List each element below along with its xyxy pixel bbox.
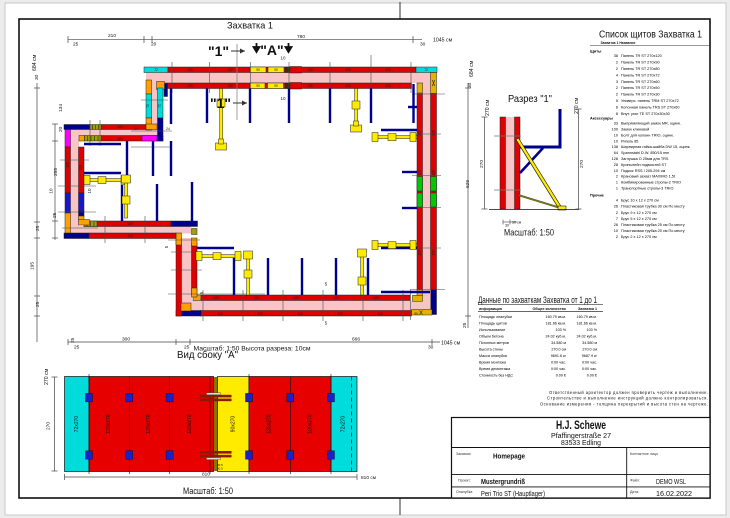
svg-text:Данные по захваткам Захватка: Данные по захваткам Захватка от 1 до 1 [478, 295, 597, 305]
svg-text:4: 4 [616, 199, 618, 203]
svg-text:20: 20 [151, 42, 157, 48]
svg-text:120x270: 120x270 [106, 414, 112, 433]
svg-text:"A": "A" [260, 42, 283, 58]
svg-text:120: 120 [418, 170, 422, 176]
svg-text:Панель TR ST 270x50: Панель TR ST 270x50 [621, 86, 660, 90]
svg-text:Файл:: Файл: [630, 479, 640, 483]
svg-text:20: 20 [58, 126, 64, 132]
svg-text:134: 134 [58, 104, 64, 112]
svg-text:120: 120 [307, 68, 313, 72]
svg-text:Колонная панель TRS ST 270x60: Колонная панель TRS ST 270x60 [621, 105, 679, 109]
svg-text:270.0 см: 270.0 см [582, 347, 597, 351]
svg-text:300: 300 [122, 337, 130, 343]
svg-text:30: 30 [467, 82, 473, 88]
svg-text:информация: информация [479, 307, 502, 311]
svg-text:Заглушка O 25мм для TRS: Заглушка O 25мм для TRS [621, 157, 669, 161]
svg-text:120: 120 [432, 170, 436, 176]
svg-text:Панель TR ST 270x90: Панель TR ST 270x90 [621, 61, 660, 65]
svg-text:Время монтажа: Время монтажа [479, 360, 507, 364]
svg-text:1: 1 [616, 181, 618, 185]
svg-text:Кронштейн подмостей ST: Кронштейн подмостей ST [621, 163, 667, 167]
svg-text:Пластиковая трубка 20 см По ме: Пластиковая трубка 20 см По месту [621, 229, 685, 233]
svg-text:Брус 9 x 12 x 270 см: Брус 9 x 12 x 270 см [621, 211, 657, 215]
svg-text:120: 120 [187, 84, 193, 88]
svg-text:684 см: 684 см [32, 54, 38, 71]
svg-text:810 см: 810 см [361, 475, 376, 481]
svg-text:8: 8 [616, 112, 618, 116]
svg-text:120: 120 [127, 222, 133, 226]
svg-text:34.580 м: 34.580 м [551, 341, 566, 345]
svg-text:160.79 кв.м.: 160.79 кв.м. [546, 315, 566, 319]
svg-text:120: 120 [227, 84, 233, 88]
svg-text:120x270: 120x270 [146, 414, 152, 433]
svg-text:120: 120 [345, 84, 351, 88]
svg-text:72x270: 72x270 [74, 416, 80, 433]
svg-text:16.02.2022: 16.02.2022 [656, 491, 692, 498]
svg-text:160.79 кв.м.: 160.79 кв.м. [577, 315, 597, 319]
svg-text:10: 10 [614, 169, 618, 173]
svg-text:Опалубка: Опалубка [456, 490, 472, 494]
svg-text:Высота стены: Высота стены [479, 347, 503, 351]
svg-text:Подкос RSS I 205-294 см: Подкос RSS I 205-294 см [621, 169, 666, 173]
svg-text:666: 666 [352, 337, 360, 343]
svg-text:10: 10 [614, 139, 618, 143]
svg-text:Комбинированные стропы-2 TRIO: Комбинированные стропы-2 TRIO [621, 181, 681, 185]
svg-text:0.00 €: 0.00 € [587, 373, 597, 377]
svg-text:Брус 5 x 12 x 270 см: Брус 5 x 12 x 270 см [621, 217, 657, 221]
svg-text:2: 2 [616, 93, 618, 97]
svg-text:120: 120 [117, 125, 123, 129]
svg-text:120x270: 120x270 [187, 414, 193, 433]
svg-text:270: 270 [479, 160, 485, 168]
svg-text:120x270: 120x270 [267, 414, 273, 433]
svg-text:Проект:: Проект: [458, 479, 471, 483]
svg-text:25: 25 [74, 345, 80, 351]
svg-text:120: 120 [418, 130, 422, 136]
svg-text:72: 72 [154, 68, 158, 72]
svg-text:0:00 час.: 0:00 час. [582, 360, 597, 364]
svg-text:10: 10 [49, 188, 54, 194]
svg-text:Крановый захват MAXIMO 1,5t: Крановый захват MAXIMO 1,5t [621, 175, 676, 179]
svg-text:Шарнирная гайка-шайба DW 15, о: Шарнирная гайка-шайба DW 15, оцинк. [621, 145, 690, 149]
svg-text:Строительство и выполнение инс: Строительство и выполнение инструкций до… [547, 396, 708, 401]
svg-text:Щиты: Щиты [590, 49, 601, 53]
svg-text:90: 90 [256, 68, 260, 72]
svg-text:Время демонтажа: Время демонтажа [479, 367, 511, 371]
svg-text:90: 90 [274, 68, 278, 72]
svg-text:3: 3 [616, 80, 618, 84]
svg-text:24.02 куб.м.: 24.02 куб.м. [546, 334, 567, 338]
svg-text:Внут. угол TE ST 270x30x30: Внут. угол TE ST 270x30x30 [621, 112, 670, 116]
svg-text:Выпрямляющий замок MR, оцинк.: Выпрямляющий замок MR, оцинк. [621, 122, 681, 126]
svg-text:120: 120 [385, 84, 391, 88]
svg-text:Дата:: Дата: [630, 490, 639, 494]
svg-text:255: 255 [53, 168, 59, 176]
svg-text:DEMO WSL: DEMO WSL [656, 479, 686, 486]
svg-text:120: 120 [337, 312, 343, 316]
svg-text:Универс. панель TRM ST 270x72: Универс. панель TRM ST 270x72 [621, 99, 679, 103]
svg-text:Контактное лицо: Контактное лицо [630, 452, 658, 456]
svg-text:64: 64 [614, 151, 618, 155]
svg-text:Pfaffingerstraße 27: Pfaffingerstraße 27 [551, 433, 611, 440]
svg-text:120: 120 [418, 250, 422, 256]
svg-text:Панель TR ST 270x80: Панель TR ST 270x80 [621, 67, 660, 71]
svg-text:Захватка 1: Захватка 1 [227, 21, 273, 31]
svg-text:120: 120 [127, 234, 133, 238]
svg-text:30: 30 [420, 42, 426, 48]
svg-text:Peri Trio ST (Hauptlager): Peri Trio ST (Hauptlager) [481, 491, 545, 498]
svg-text:1045 см: 1045 см [441, 341, 461, 347]
svg-text:684 см: 684 см [469, 60, 475, 77]
svg-text:Панель TR ST 270x60: Панель TR ST 270x60 [621, 80, 660, 84]
svg-text:"1": "1" [208, 43, 229, 59]
svg-text:Панель TR ST 270x72: Панель TR ST 270x72 [621, 73, 660, 77]
svg-text:90: 90 [274, 84, 278, 88]
svg-text:83533 Edling: 83533 Edling [561, 440, 601, 447]
svg-text:Homepage: Homepage [493, 454, 525, 461]
svg-text:120: 120 [432, 250, 436, 256]
svg-text:Использование: Использование [479, 328, 505, 332]
svg-text:9691.6 кг: 9691.6 кг [551, 354, 567, 358]
svg-text:90x270: 90x270 [231, 416, 237, 433]
svg-text:Общее количество: Общее количество [532, 307, 566, 311]
svg-text:7: 7 [616, 217, 618, 221]
svg-text:2: 2 [616, 61, 618, 65]
svg-text:270.0 см: 270.0 см [551, 347, 566, 351]
svg-text:Основание измерения - толщина: Основание измерения - толщина перекрытий… [540, 401, 708, 406]
svg-text:Ригель 85: Ригель 85 [621, 139, 638, 143]
svg-text:33: 33 [614, 122, 618, 126]
svg-text:210: 210 [108, 33, 116, 39]
svg-text:120: 120 [117, 137, 123, 141]
svg-text:Брус 2 x 12 x 270 см: Брус 2 x 12 x 270 см [621, 235, 657, 239]
svg-text:25: 25 [462, 322, 468, 328]
svg-text:120: 120 [377, 312, 383, 316]
svg-text:26: 26 [614, 223, 618, 227]
svg-text:Погонных метров: Погонных метров [479, 341, 509, 345]
svg-text:270 см: 270 см [485, 99, 491, 116]
svg-text:120: 120 [432, 130, 436, 136]
svg-text:Разрез "1": Разрез "1" [508, 94, 552, 105]
svg-text:25: 25 [35, 225, 41, 231]
svg-text:30 см: 30 см [512, 221, 522, 225]
svg-text:26: 26 [614, 205, 618, 209]
svg-text:72: 72 [146, 104, 150, 108]
svg-text:2: 2 [616, 86, 618, 90]
svg-text:120: 120 [385, 68, 391, 72]
svg-text:120: 120 [293, 296, 299, 300]
svg-text:2: 2 [616, 211, 618, 215]
svg-text:810: 810 [202, 472, 210, 478]
svg-text:34.580 м: 34.580 м [582, 341, 597, 345]
svg-text:Масса опалубки: Масса опалубки [479, 354, 507, 358]
svg-text:100: 100 [612, 128, 618, 132]
svg-text:Захватка 1 Название: Захватка 1 Название [601, 41, 636, 45]
svg-text:270: 270 [579, 160, 585, 168]
svg-text:120: 120 [307, 84, 313, 88]
svg-text:0:00 час.: 0:00 час. [551, 367, 566, 371]
svg-text:Площадь щитов: Площадь щитов [479, 321, 507, 325]
svg-text:120: 120 [373, 296, 379, 300]
svg-text:6: 6 [616, 105, 618, 109]
svg-text:0:00 час.: 0:00 час. [582, 367, 597, 371]
svg-text:120x270: 120x270 [308, 414, 314, 433]
svg-text:120: 120 [297, 312, 303, 316]
svg-text:120: 120 [213, 296, 219, 300]
svg-text:Прочие: Прочие [590, 194, 604, 198]
svg-text:181.66 кв.м.: 181.66 кв.м. [546, 321, 566, 325]
svg-text:Масштаб: 1:50: Масштаб: 1:50 [504, 228, 554, 239]
svg-text:90: 90 [256, 84, 260, 88]
svg-text:30: 30 [428, 345, 434, 351]
svg-text:120: 120 [257, 312, 263, 316]
svg-text:30: 30 [34, 74, 40, 80]
svg-text:10: 10 [280, 96, 286, 101]
svg-text:Пластиковая трубка 25 см По ме: Пластиковая трубка 25 см По месту [621, 223, 685, 227]
svg-text:1045 см: 1045 см [433, 38, 453, 44]
svg-text:72: 72 [424, 68, 428, 72]
svg-text:90: 90 [414, 312, 418, 316]
svg-text:H.J. Schewe: H.J. Schewe [556, 420, 606, 432]
svg-text:103 %: 103 % [556, 328, 567, 332]
svg-text:72: 72 [158, 104, 162, 108]
svg-text:Пластиковая трубка 30 см По ме: Пластиковая трубка 30 см По месту [621, 205, 685, 209]
svg-text:138: 138 [612, 145, 618, 149]
svg-text:Стоимость без НДС: Стоимость без НДС [479, 373, 513, 377]
svg-text:Площадь опалубки: Площадь опалубки [479, 315, 512, 319]
svg-text:24: 24 [166, 127, 170, 131]
svg-text:2: 2 [616, 67, 618, 71]
svg-text:Панель TR ST 270x30: Панель TR ST 270x30 [621, 93, 660, 97]
svg-text:Болт для колонн TRIO, оцинк.: Болт для колонн TRIO, оцинк. [621, 133, 674, 137]
svg-text:120: 120 [79, 165, 83, 171]
svg-text:10: 10 [614, 133, 618, 137]
svg-text:24: 24 [134, 127, 138, 131]
svg-text:Панель TR ST 270x120: Панель TR ST 270x120 [621, 54, 662, 58]
svg-text:"1": "1" [210, 95, 231, 111]
svg-text:Mustergrundriß: Mustergrundriß [481, 479, 526, 486]
svg-text:Захватка 1: Захватка 1 [578, 307, 597, 311]
svg-text:10: 10 [87, 188, 92, 194]
svg-text:Список щитов Захватка 1: Список щитов Захватка 1 [599, 30, 702, 41]
svg-text:120: 120 [66, 162, 70, 168]
svg-text:Транспортные стропы-3 TRIO: Транспортные стропы-3 TRIO [621, 187, 673, 191]
svg-text:Масштаб: 1:50: Масштаб: 1:50 [183, 486, 233, 497]
svg-text:120: 120 [345, 68, 351, 72]
svg-text:38: 38 [614, 54, 618, 58]
svg-text:4: 4 [616, 73, 618, 77]
svg-text:25: 25 [73, 42, 79, 48]
svg-text:10: 10 [614, 229, 618, 233]
svg-text:9687.9 кг: 9687.9 кг [582, 354, 598, 358]
svg-text:Заказчик: Заказчик [456, 452, 471, 456]
svg-text:72x270: 72x270 [341, 416, 347, 433]
svg-text:120: 120 [227, 68, 233, 72]
svg-text:0.00 €: 0.00 € [556, 373, 566, 377]
svg-text:780: 780 [297, 34, 305, 40]
svg-text:120: 120 [253, 296, 259, 300]
svg-text:Брус 10 x 12 x 270 см: Брус 10 x 12 x 270 см [621, 199, 659, 203]
svg-text:Вид сбоку "А": Вид сбоку "А" [177, 349, 238, 361]
svg-text:2: 2 [616, 235, 618, 239]
svg-text:30.5: 30.5 [217, 467, 223, 471]
svg-text:25: 25 [35, 301, 41, 307]
svg-text:28: 28 [614, 163, 618, 167]
svg-text:120: 120 [187, 68, 193, 72]
svg-text:Аксессуары: Аксессуары [590, 117, 613, 121]
svg-text:0:00 час.: 0:00 час. [551, 360, 566, 364]
svg-text:Замок клиновой: Замок клиновой [621, 128, 649, 132]
svg-text:629: 629 [465, 180, 471, 188]
svg-text:128: 128 [612, 157, 618, 161]
svg-text:Spannstahl D.W. 850/15 mm: Spannstahl D.W. 850/15 mm [621, 151, 669, 155]
svg-text:181.66 кв.м.: 181.66 кв.м. [577, 321, 597, 325]
svg-text:120: 120 [217, 312, 223, 316]
svg-text:24.02 куб.м.: 24.02 куб.м. [577, 334, 598, 338]
svg-text:270: 270 [46, 422, 52, 430]
svg-text:270 см: 270 см [574, 97, 580, 114]
svg-text:103 %: 103 % [587, 328, 598, 332]
svg-text:270 см: 270 см [44, 368, 50, 385]
svg-text:5: 5 [616, 99, 618, 103]
svg-text:25: 25 [52, 212, 58, 218]
svg-text:Ответственный архитектор долже: Ответственный архитектор должен проверит… [549, 390, 708, 395]
svg-text:120: 120 [333, 296, 339, 300]
svg-text:195: 195 [30, 262, 36, 270]
svg-text:1: 1 [616, 187, 618, 191]
svg-text:Объем бетона: Объем бетона [479, 334, 505, 338]
svg-text:2: 2 [616, 175, 618, 179]
